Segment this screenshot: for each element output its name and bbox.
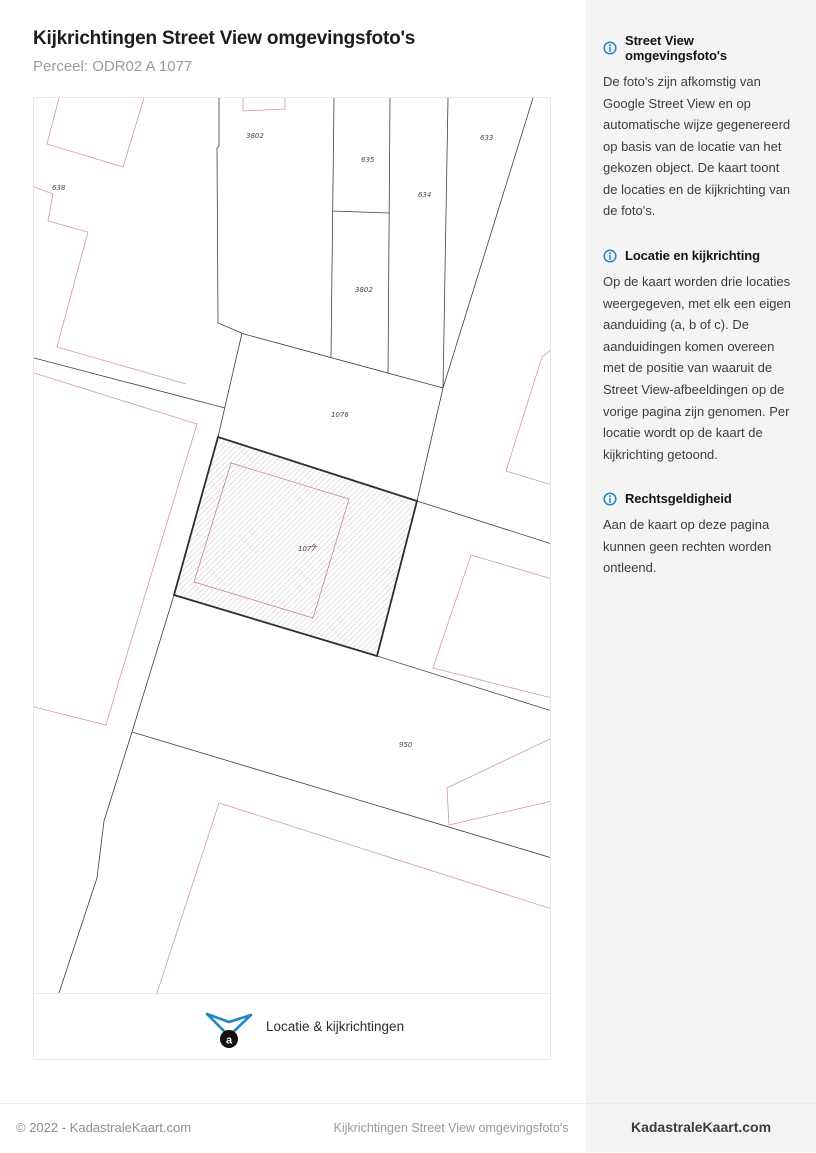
sidebar-section-locatie: Locatie en kijkrichting Op de kaart word…: [603, 248, 792, 465]
parcel-label-3802: 3802: [246, 132, 264, 140]
info-icon: [603, 492, 617, 506]
parcel-label-3802: 3802: [355, 286, 373, 294]
legend-label: Locatie & kijkrichtingen: [266, 1019, 404, 1034]
section-title: Rechtsgeldigheid: [625, 491, 732, 506]
page-subtitle: Perceel: ODR02 A 1077: [33, 58, 553, 75]
highlighted-parcel-1077: [174, 437, 417, 656]
page-header: Kijkrichtingen Street View omgevingsfoto…: [33, 28, 553, 75]
brand-logo: KadastraleKaart.com: [586, 1119, 816, 1135]
legend-marker-letter: a: [226, 1034, 233, 1046]
page-title: Kijkrichtingen Street View omgevingsfoto…: [33, 28, 553, 50]
sidebar-section-streetview: Street View omgevingsfoto's De foto's zi…: [603, 33, 792, 222]
map-legend: a Locatie & kijkrichtingen: [34, 993, 550, 1059]
parcel-label-635: 635: [361, 156, 375, 164]
parcel-label-633: 633: [480, 134, 493, 142]
footer: © 2022 - KadastraleKaart.com Kijkrichtin…: [0, 1103, 816, 1153]
parcel-label-634: 634: [418, 191, 431, 199]
map-panel: 6383802635633634380210761077950 a Locati…: [33, 97, 551, 1060]
footer-page-title: Kijkrichtingen Street View omgevingsfoto…: [334, 1121, 569, 1135]
section-title: Street View omgevingsfoto's: [625, 33, 792, 63]
sidebar-section-rechtsgeldigheid: Rechtsgeldigheid Aan de kaart op deze pa…: [603, 491, 792, 579]
view-cone-icon: a: [202, 1003, 256, 1051]
parcel-label-1076: 1076: [331, 411, 349, 419]
info-icon: [603, 41, 617, 55]
section-body: Aan de kaart op deze pagina kunnen geen …: [603, 514, 792, 579]
footer-copyright: © 2022 - KadastraleKaart.com: [16, 1120, 191, 1135]
parcel-label-1077: 1077: [298, 545, 316, 553]
section-body: De foto's zijn afkomstig van Google Stre…: [603, 71, 792, 222]
section-body: Op de kaart worden drie locaties weergeg…: [603, 271, 792, 465]
parcel-label-638: 638: [52, 184, 66, 192]
info-icon: [603, 249, 617, 263]
parcel-labels: 6383802635633634380210761077950: [52, 132, 493, 749]
section-title: Locatie en kijkrichting: [625, 248, 760, 263]
sidebar: Street View omgevingsfoto's De foto's zi…: [586, 0, 816, 1152]
cadastral-map-svg: 6383802635633634380210761077950: [34, 98, 550, 993]
parcel-label-950: 950: [399, 741, 413, 749]
